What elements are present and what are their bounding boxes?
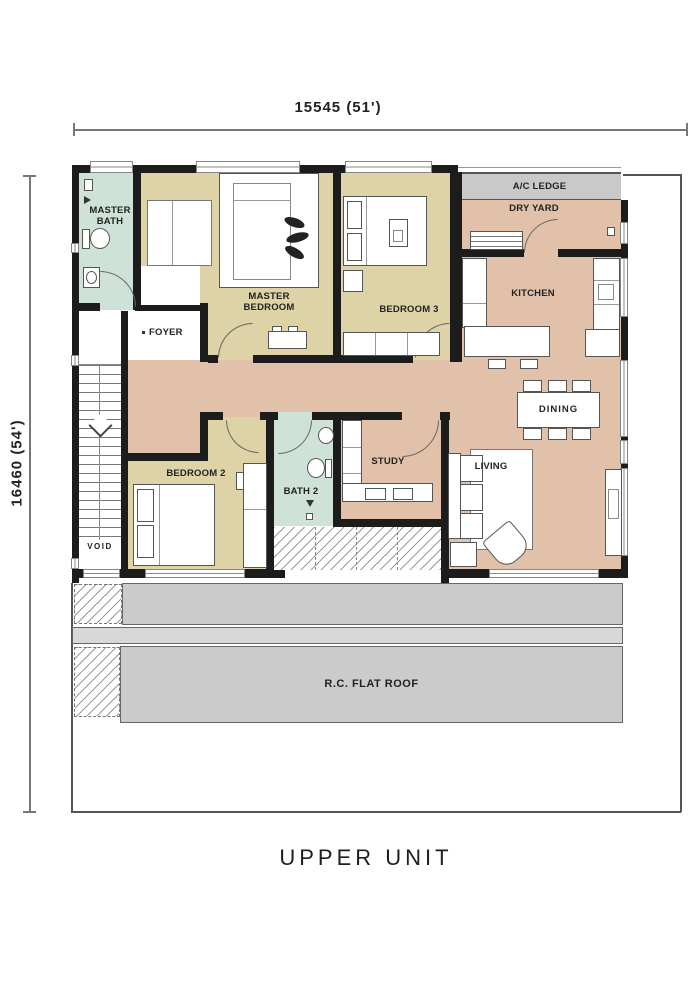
foyer-label: FOYER [149,327,183,338]
ac-ledge-label: A/C LEDGE [513,181,567,192]
toilet [325,459,332,478]
wall-segment [333,172,341,362]
wall-segment [333,519,449,527]
wardrobe [147,200,212,266]
counter-divider [594,280,619,281]
page-title: UPPER UNIT [72,845,660,871]
dimension-width-label: 15545 (51') [73,99,603,116]
chair [548,380,567,392]
wardrobe-divider [244,509,266,510]
bedroom-entry [141,266,200,305]
sofa-cushion [460,513,483,539]
pillow [137,489,154,522]
sofa-cushion [460,484,483,511]
sideboard-divider [407,333,408,355]
site-outline [71,811,681,813]
tap-icon [607,227,615,236]
roof-band [122,583,623,625]
roof-band-light [72,627,623,644]
wall-segment [121,453,207,461]
wall-segment [72,165,79,583]
window [145,569,245,578]
dresser [268,331,307,349]
pillow [347,233,362,261]
kitchen-label: KITCHEN [506,288,560,299]
hall-floor [128,360,208,457]
toilet [90,228,110,249]
pillow [137,525,154,558]
counter-divider [463,303,486,304]
window [196,161,300,173]
stove-icon [598,284,614,300]
stool [520,359,538,369]
wall-segment [208,355,218,363]
wardrobe [343,270,363,292]
dimension-height-label: 16460 (54') [9,419,26,506]
master-bed-sheet [233,183,291,280]
window [489,569,599,578]
wall-segment [200,412,208,461]
tv-icon [608,489,619,519]
ac-ledge: A/C LEDGE [458,172,621,200]
site-outline [71,583,73,812]
window [620,222,628,244]
wardrobe-knob [236,472,244,490]
wardrobe-divider [172,201,173,265]
master-bedroom-label: MASTER BEDROOM [238,291,300,314]
wall-segment [455,249,524,257]
wall-segment [200,305,208,362]
wardrobe [243,463,267,568]
bath2-label: BATH 2 [277,486,325,497]
wall-segment [266,412,274,576]
dimension-line-left [29,175,31,812]
dimension-line-top [73,129,687,131]
kitchen-counter [585,329,620,357]
window [71,243,79,253]
open-roof-hatch [274,527,441,570]
bed-line [159,485,160,565]
side-table [450,542,477,567]
living-label: LIVING [464,461,518,472]
sideboard-divider [375,333,376,355]
toilet [307,458,325,478]
dimension-tick [73,123,75,136]
dresser-knob [288,326,298,332]
wall-segment [121,311,128,576]
window [71,355,79,366]
stair-rail [99,365,100,540]
stair-landing [79,311,121,365]
shelf-divider [343,473,361,474]
rc-flat-roof: R.C. FLAT ROOF [120,646,623,723]
wall-segment [208,412,223,420]
floor-plan: 15545 (51') 16460 (54') A/C LEDGE [0,0,694,984]
chair [365,488,386,500]
dresser-knob [272,326,282,332]
window [620,258,628,317]
dining-label: DINING [539,404,578,415]
dining-table: DINING [517,392,600,428]
site-outline [623,174,681,176]
dry-yard-label: DRY YARD [505,203,563,214]
roof-edge-dashed [285,569,441,578]
shower-head-icon [84,196,91,204]
chair [523,428,542,440]
kitchen-counter [462,258,487,328]
wall-segment [312,412,402,420]
bedroom3-label: BEDROOM 3 [374,304,444,315]
chair [523,380,542,392]
hatch-divider [356,527,357,570]
bedroom2-label: BEDROOM 2 [161,468,231,479]
wall-segment [72,303,100,311]
window [71,558,79,569]
chair [548,428,567,440]
shelf-divider [343,447,361,448]
sink [318,427,334,444]
chair [572,428,591,440]
roof-hatch-box [74,584,122,624]
pillow [347,201,362,229]
window [620,440,628,464]
rc-flat-roof-label: R.C. FLAT ROOF [324,678,418,691]
sideboard [343,332,440,356]
window [83,569,120,578]
hatch-divider [315,527,316,570]
wall-segment [253,355,413,363]
wall-segment [450,172,462,362]
window [620,360,628,437]
staircase [79,365,121,540]
bath-shelf [84,179,93,191]
window [90,161,133,173]
bench [470,231,523,250]
window [345,161,432,173]
bedside-tray-inner [393,230,403,242]
toilet [82,229,90,249]
ledge-sill-line [458,167,621,168]
master-bath-label: MASTER BATH [84,205,136,228]
dimension-tick [23,811,36,813]
stool [488,359,506,369]
floor-trap-icon [306,500,314,507]
wall-segment [558,249,628,257]
chair [393,488,413,500]
foyer-leader-dot [142,331,145,334]
bed-line [233,200,291,201]
wall-segment [133,172,141,310]
counter-divider [594,304,619,305]
kitchen-island [464,326,550,357]
chair [572,380,591,392]
dimension-tick [686,123,688,136]
void-label: VOID [80,542,120,552]
dimension-tick [23,175,36,177]
site-outline [680,174,682,812]
study-label: STUDY [366,456,410,467]
desk [342,483,433,502]
sink [86,271,97,284]
roof-hatch-box [74,647,120,717]
hatch-divider [397,527,398,570]
bed-line [366,197,367,265]
floor-trap-icon [306,513,313,520]
wall-segment [333,412,341,527]
